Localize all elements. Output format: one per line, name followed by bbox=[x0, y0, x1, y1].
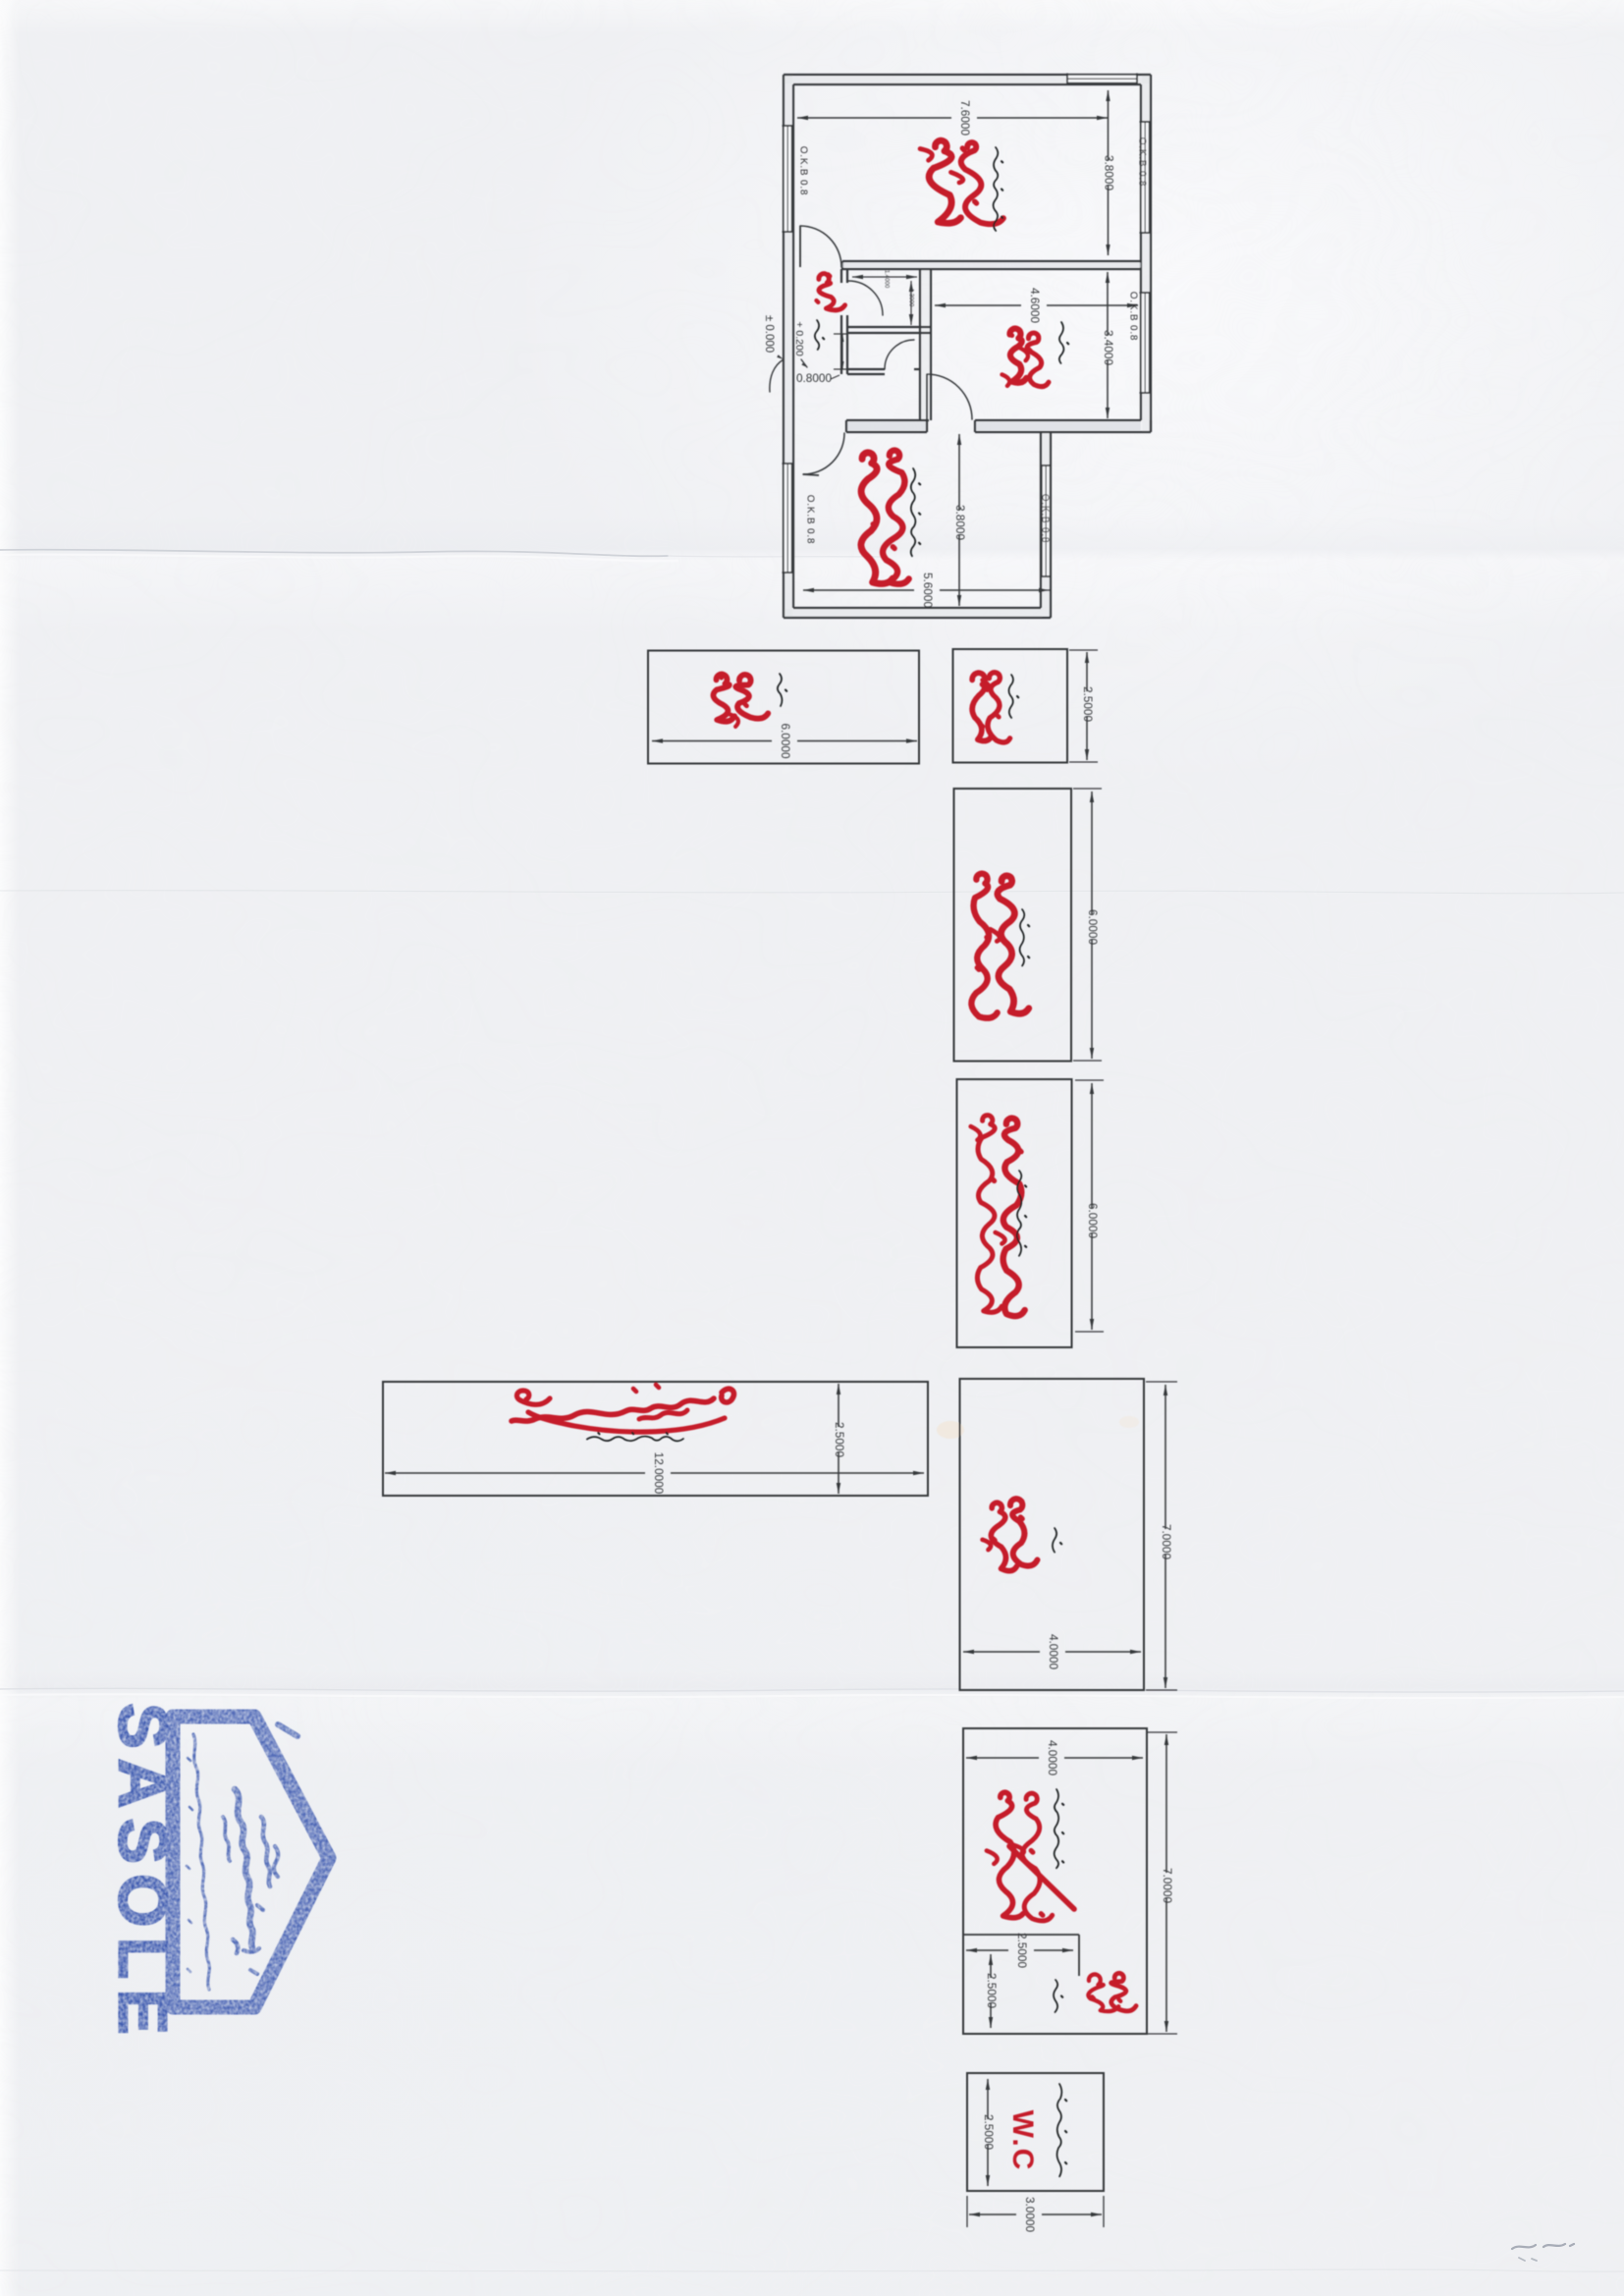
svg-text:2.5000: 2.5000 bbox=[1015, 1933, 1029, 1969]
svg-text:O.K.B 0.8: O.K.B 0.8 bbox=[797, 146, 808, 196]
svg-text:3.0000: 3.0000 bbox=[1023, 2197, 1037, 2233]
svg-text:6.0000: 6.0000 bbox=[1086, 909, 1100, 946]
svg-text:7.0000: 7.0000 bbox=[1160, 1524, 1173, 1560]
svg-text:+ 0.200: + 0.200 bbox=[793, 321, 805, 355]
svg-text:3.4000: 3.4000 bbox=[1102, 330, 1115, 366]
svg-text:4.0000: 4.0000 bbox=[1046, 1740, 1059, 1777]
svg-text:5.6000: 5.6000 bbox=[921, 573, 935, 609]
svg-text:O.K.B 0.8: O.K.B 0.8 bbox=[804, 495, 815, 545]
svg-text:O.K.B 0.8: O.K.B 0.8 bbox=[1127, 292, 1138, 342]
svg-text:2.5000: 2.5000 bbox=[833, 1422, 846, 1458]
svg-text:4.0000: 4.0000 bbox=[1047, 1634, 1060, 1670]
svg-text:7.0000: 7.0000 bbox=[1161, 1868, 1174, 1904]
svg-text:W.C: W.C bbox=[1006, 2110, 1039, 2172]
svg-text:1.3000: 1.3000 bbox=[907, 289, 913, 307]
svg-text:1.4000: 1.4000 bbox=[883, 270, 889, 289]
svg-text:O.K.B 0.8: O.K.B 0.8 bbox=[1039, 494, 1050, 544]
svg-text:7.6000: 7.6000 bbox=[958, 100, 972, 137]
svg-text:2.5000: 2.5000 bbox=[1081, 686, 1095, 723]
svg-text:0.8000: 0.8000 bbox=[796, 371, 833, 385]
svg-text:SASOLE: SASOLE bbox=[105, 1703, 182, 2045]
svg-text:3.8000: 3.8000 bbox=[953, 505, 967, 541]
svg-text:6.0000: 6.0000 bbox=[779, 723, 792, 759]
svg-text:12.0000: 12.0000 bbox=[652, 1452, 666, 1495]
svg-text:2.5000: 2.5000 bbox=[982, 2114, 996, 2151]
svg-text:O.K.B 0.8: O.K.B 0.8 bbox=[1136, 137, 1147, 188]
svg-text:2.5000: 2.5000 bbox=[985, 1973, 999, 2009]
svg-text:6.0000: 6.0000 bbox=[1086, 1203, 1100, 1239]
svg-text:± 0.000: ± 0.000 bbox=[763, 315, 775, 353]
svg-text:4.6000: 4.6000 bbox=[1028, 288, 1042, 324]
svg-text:3.8000: 3.8000 bbox=[1102, 155, 1115, 191]
